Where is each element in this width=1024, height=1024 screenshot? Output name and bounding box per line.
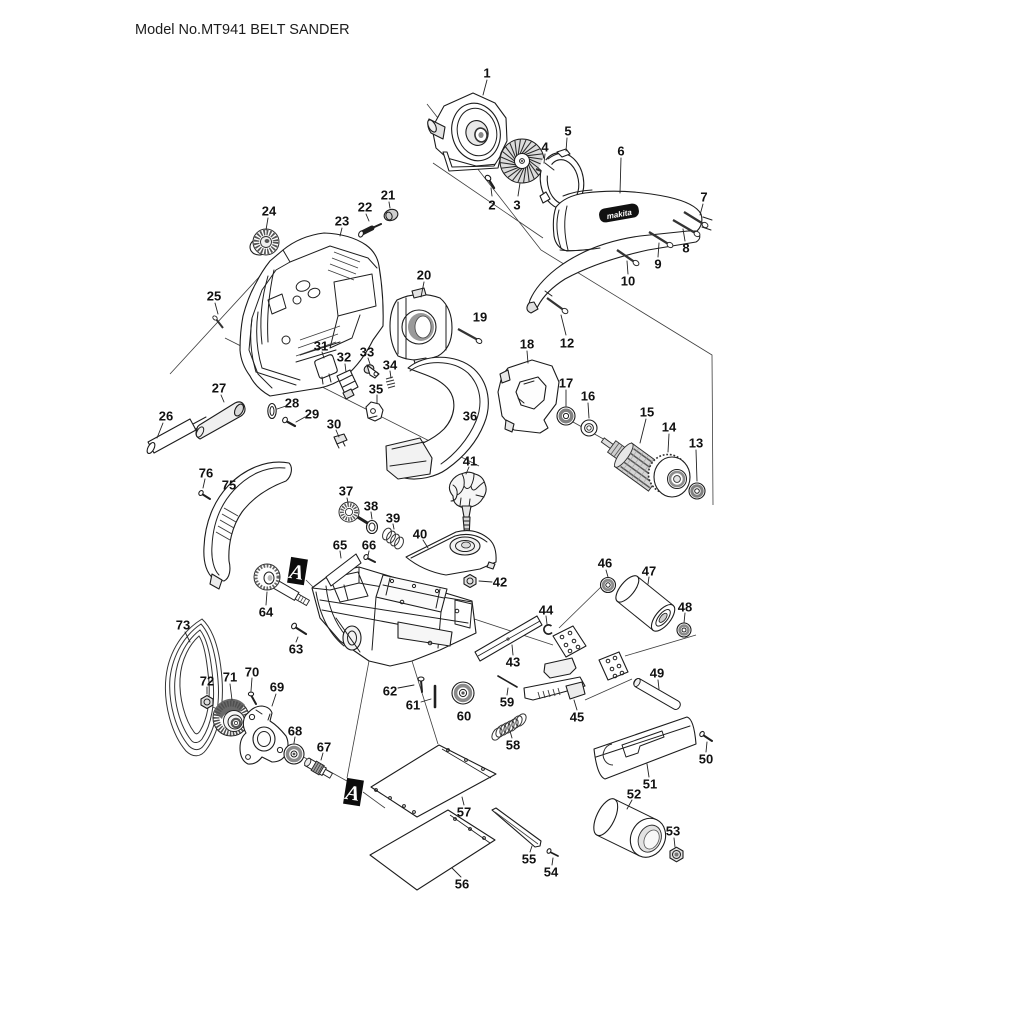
svg-text:59: 59 bbox=[500, 695, 514, 710]
svg-text:54: 54 bbox=[544, 865, 559, 880]
svg-text:15: 15 bbox=[640, 405, 654, 420]
svg-text:47: 47 bbox=[642, 564, 656, 579]
svg-text:2: 2 bbox=[488, 198, 495, 213]
svg-text:36: 36 bbox=[463, 409, 477, 424]
svg-text:7: 7 bbox=[700, 190, 707, 205]
svg-text:23: 23 bbox=[335, 214, 349, 229]
svg-text:1: 1 bbox=[483, 66, 490, 81]
svg-text:46: 46 bbox=[598, 556, 612, 571]
svg-text:10: 10 bbox=[621, 274, 635, 289]
svg-text:76: 76 bbox=[199, 466, 213, 481]
svg-text:68: 68 bbox=[288, 724, 302, 739]
svg-text:Model No.MT941 BELT SANDER: Model No.MT941 BELT SANDER bbox=[135, 22, 350, 38]
svg-text:32: 32 bbox=[337, 350, 351, 365]
svg-text:6: 6 bbox=[617, 144, 624, 159]
svg-text:48: 48 bbox=[678, 600, 692, 615]
svg-text:45: 45 bbox=[570, 710, 584, 725]
svg-text:61: 61 bbox=[406, 698, 420, 713]
svg-text:52: 52 bbox=[627, 787, 641, 802]
svg-text:65: 65 bbox=[333, 538, 347, 553]
svg-text:72: 72 bbox=[200, 674, 214, 689]
svg-text:5: 5 bbox=[564, 124, 571, 139]
svg-text:20: 20 bbox=[417, 268, 431, 283]
svg-text:4: 4 bbox=[541, 140, 549, 155]
svg-text:75: 75 bbox=[222, 478, 236, 493]
svg-text:26: 26 bbox=[159, 409, 173, 424]
svg-text:30: 30 bbox=[327, 417, 341, 432]
svg-text:22: 22 bbox=[358, 200, 372, 215]
svg-text:44: 44 bbox=[539, 603, 554, 618]
svg-text:43: 43 bbox=[506, 655, 520, 670]
svg-text:57: 57 bbox=[457, 805, 471, 820]
svg-text:50: 50 bbox=[699, 752, 713, 767]
svg-text:37: 37 bbox=[339, 484, 353, 499]
svg-text:73: 73 bbox=[176, 618, 190, 633]
svg-text:25: 25 bbox=[207, 289, 221, 304]
svg-text:40: 40 bbox=[413, 527, 427, 542]
svg-text:12: 12 bbox=[560, 336, 574, 351]
svg-text:56: 56 bbox=[455, 877, 469, 892]
svg-text:70: 70 bbox=[245, 665, 259, 680]
svg-text:31: 31 bbox=[314, 339, 328, 354]
svg-text:39: 39 bbox=[386, 511, 400, 526]
svg-text:49: 49 bbox=[650, 666, 664, 681]
svg-text:8: 8 bbox=[682, 241, 689, 256]
svg-text:55: 55 bbox=[522, 852, 536, 867]
svg-text:71: 71 bbox=[223, 670, 237, 685]
svg-text:29: 29 bbox=[305, 407, 319, 422]
svg-text:16: 16 bbox=[581, 389, 595, 404]
svg-text:62: 62 bbox=[383, 684, 397, 699]
svg-text:58: 58 bbox=[506, 738, 520, 753]
svg-text:64: 64 bbox=[259, 605, 274, 620]
svg-text:60: 60 bbox=[457, 709, 471, 724]
svg-text:21: 21 bbox=[381, 188, 395, 203]
svg-text:66: 66 bbox=[362, 538, 376, 553]
svg-text:34: 34 bbox=[383, 358, 398, 373]
svg-text:67: 67 bbox=[317, 740, 331, 755]
svg-text:13: 13 bbox=[689, 436, 703, 451]
svg-text:51: 51 bbox=[643, 777, 657, 792]
svg-text:42: 42 bbox=[493, 575, 507, 590]
svg-text:19: 19 bbox=[473, 310, 487, 325]
svg-text:3: 3 bbox=[513, 198, 520, 213]
svg-text:9: 9 bbox=[654, 257, 661, 272]
svg-text:17: 17 bbox=[559, 376, 573, 391]
svg-text:35: 35 bbox=[369, 382, 383, 397]
svg-text:33: 33 bbox=[360, 345, 374, 360]
svg-text:53: 53 bbox=[666, 824, 680, 839]
svg-text:69: 69 bbox=[270, 680, 284, 695]
svg-text:63: 63 bbox=[289, 642, 303, 657]
svg-text:41: 41 bbox=[463, 454, 477, 469]
svg-text:14: 14 bbox=[662, 420, 677, 435]
svg-text:18: 18 bbox=[520, 337, 534, 352]
svg-text:24: 24 bbox=[262, 204, 277, 219]
svg-text:27: 27 bbox=[212, 381, 226, 396]
svg-text:38: 38 bbox=[364, 499, 378, 514]
svg-text:28: 28 bbox=[285, 396, 299, 411]
